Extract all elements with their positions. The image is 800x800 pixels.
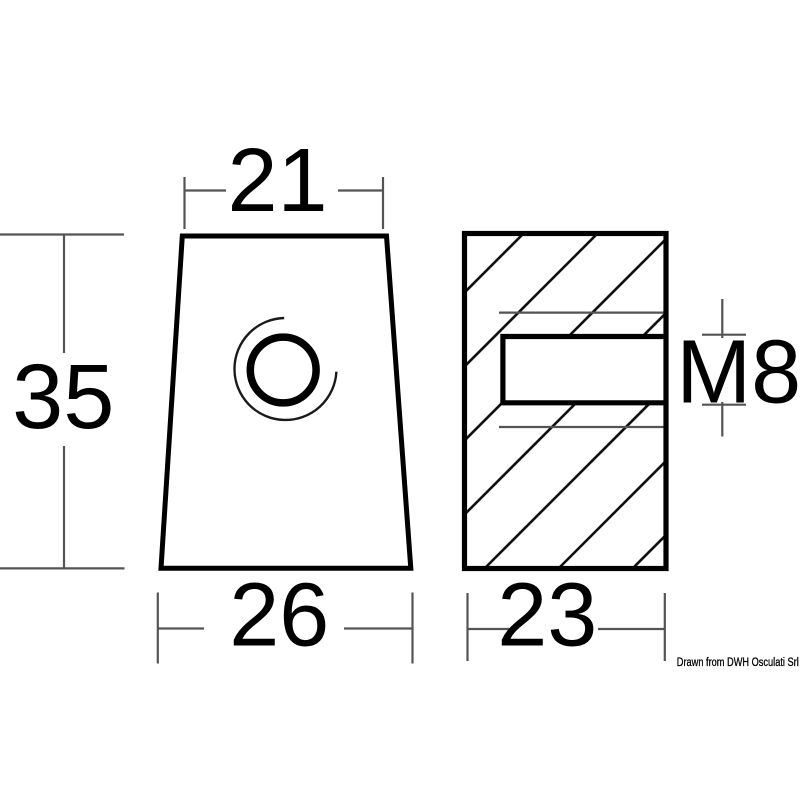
svg-text:M8: M8: [676, 323, 800, 423]
svg-text:Drawn from DWH Osculati Srl: Drawn from DWH Osculati Srl: [677, 655, 799, 669]
svg-text:35: 35: [12, 346, 114, 448]
svg-text:23: 23: [497, 566, 597, 666]
svg-text:21: 21: [227, 131, 327, 231]
svg-text:26: 26: [229, 566, 329, 666]
